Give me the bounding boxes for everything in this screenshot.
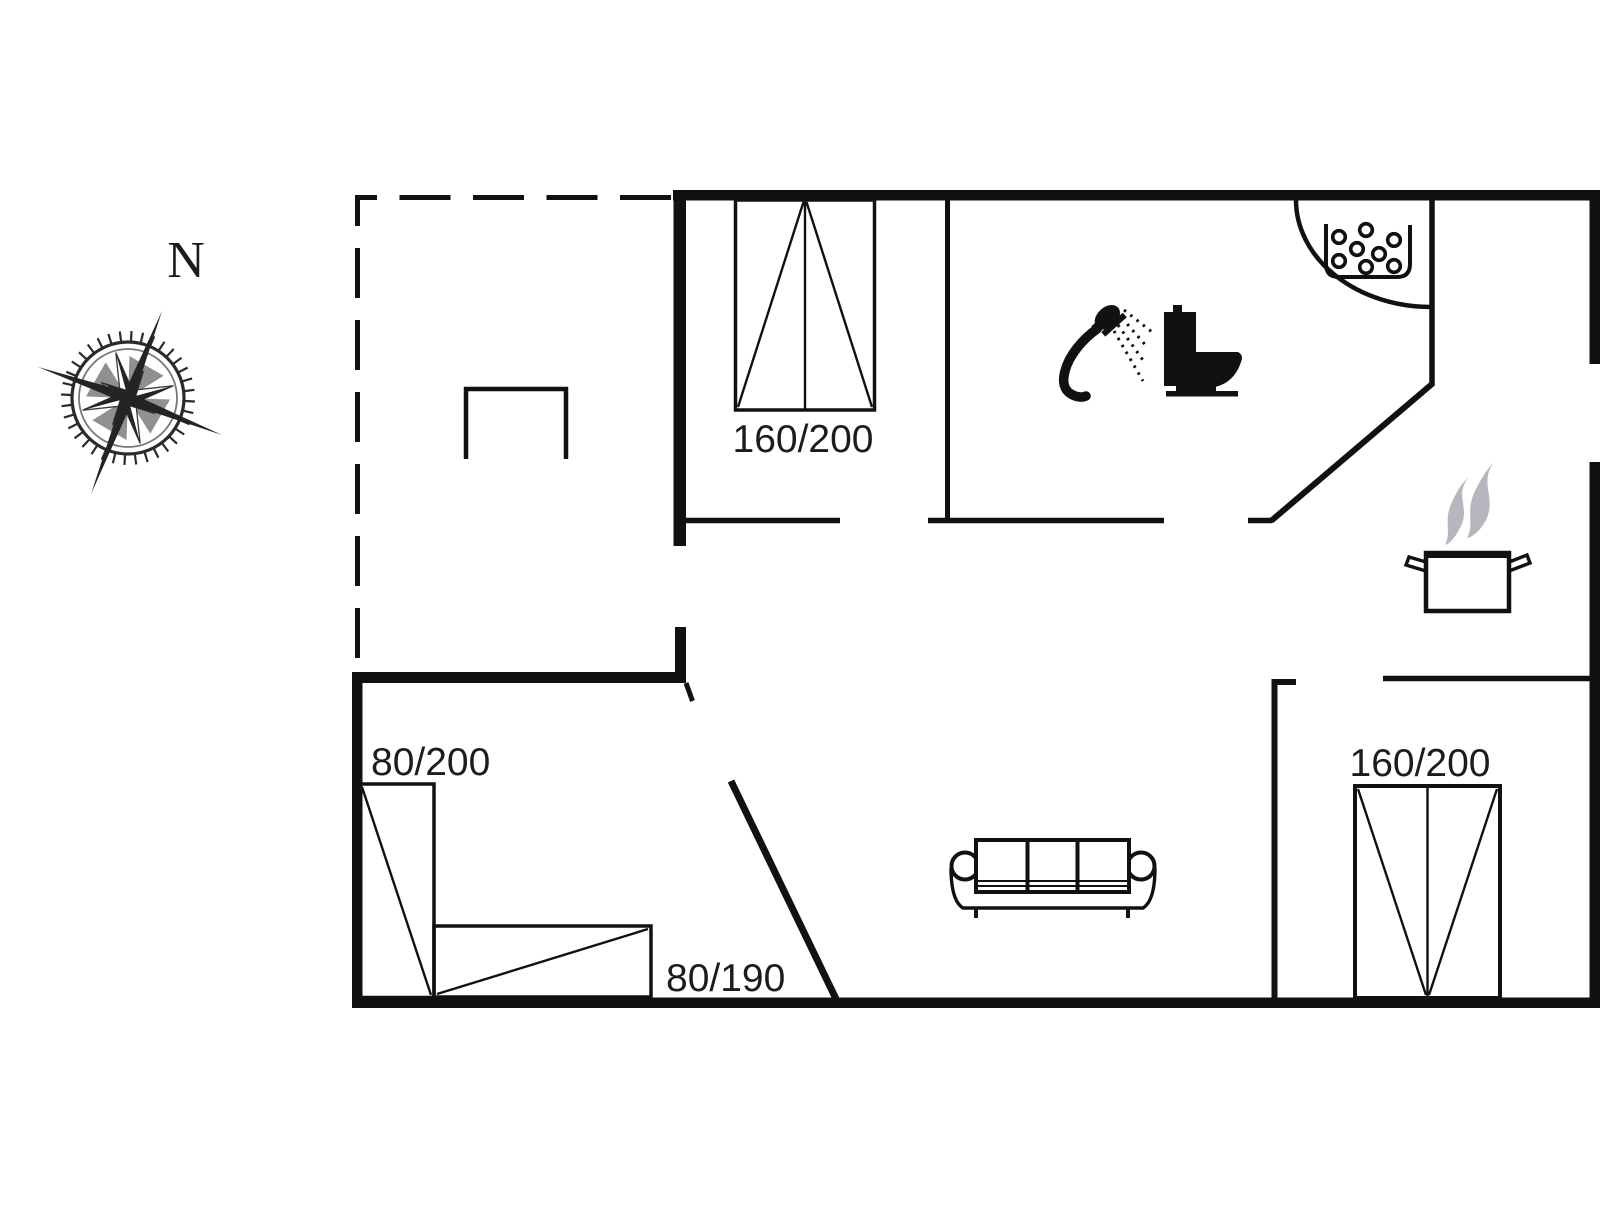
svg-text:160/200: 160/200 bbox=[733, 418, 874, 461]
svg-text:80/190: 80/190 bbox=[666, 957, 785, 1000]
svg-text:80/200: 80/200 bbox=[371, 741, 490, 784]
svg-text:160/200: 160/200 bbox=[1350, 742, 1491, 785]
svg-text:N: N bbox=[167, 232, 205, 289]
